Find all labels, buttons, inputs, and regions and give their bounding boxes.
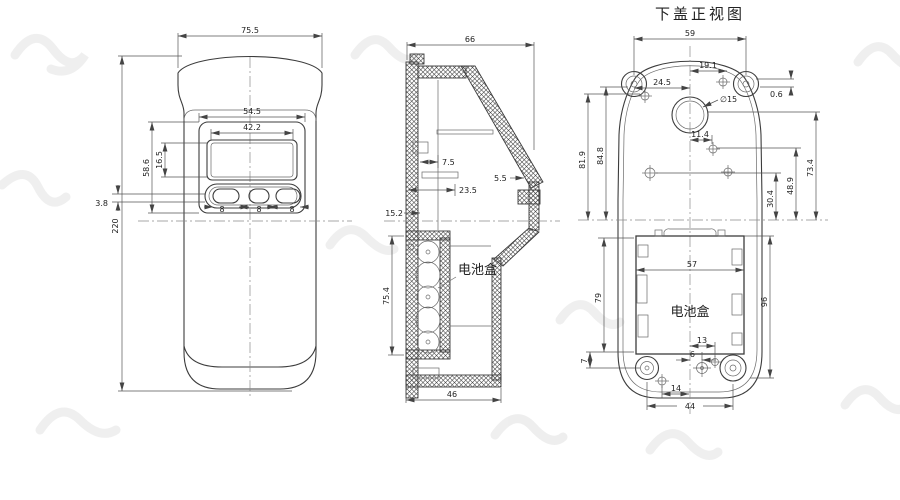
svg-text:75.4: 75.4 bbox=[382, 287, 391, 305]
battery-box-tab-left bbox=[655, 230, 662, 236]
button-1 bbox=[213, 189, 239, 203]
svg-text:23.5: 23.5 bbox=[459, 186, 477, 195]
top-notch bbox=[410, 54, 424, 64]
svg-text:8: 8 bbox=[256, 205, 261, 214]
view-title: 下盖正视图 bbox=[655, 5, 745, 23]
dim-display-width: 42.2 bbox=[211, 123, 293, 140]
dim-bottom-width: 46 bbox=[406, 388, 501, 403]
dim-center-hole: ∅15 bbox=[703, 95, 737, 107]
button-3 bbox=[276, 189, 300, 203]
side-boss bbox=[518, 190, 540, 204]
hole-mid-left bbox=[642, 165, 658, 181]
hole-mid-right bbox=[721, 165, 735, 179]
svg-text:75.5: 75.5 bbox=[241, 26, 259, 35]
right-upper-wall bbox=[529, 182, 539, 230]
lcd-display-inner bbox=[211, 143, 293, 177]
battery-cells bbox=[416, 241, 440, 353]
front-panel bbox=[199, 122, 305, 213]
front-view: 75.5 220 54.5 42.2 58.6 bbox=[95, 26, 352, 398]
svg-text:54.5: 54.5 bbox=[243, 107, 261, 116]
battery-box-label: 电池盒 bbox=[670, 304, 709, 320]
svg-text:48.9: 48.9 bbox=[786, 177, 795, 195]
battery-box-tab-right bbox=[718, 230, 725, 236]
left-wall bbox=[406, 62, 418, 398]
top-wall bbox=[418, 66, 466, 78]
svg-text:7: 7 bbox=[580, 358, 589, 363]
screw-boss-top-right bbox=[734, 72, 759, 97]
svg-text:66: 66 bbox=[465, 35, 475, 44]
dim-hole-offset: 11.4 bbox=[690, 130, 712, 144]
svg-text:220: 220 bbox=[111, 218, 120, 233]
dim-height-489: 48.9 bbox=[717, 148, 801, 220]
back-view: 下盖正视图 bbox=[578, 5, 828, 414]
lcd-display-outer bbox=[207, 140, 297, 180]
svg-text:57: 57 bbox=[687, 260, 697, 269]
svg-text:46: 46 bbox=[447, 390, 457, 399]
dim-hole-pitch-left: 24.5 bbox=[634, 78, 690, 88]
battery-box-label: 电池盒 bbox=[458, 262, 497, 278]
svg-text:58.6: 58.6 bbox=[142, 159, 151, 177]
svg-text:∅15: ∅15 bbox=[720, 95, 737, 104]
dim-box-height-left: 79 bbox=[586, 238, 634, 352]
hole-bottom-small bbox=[709, 356, 721, 368]
svg-text:96: 96 bbox=[760, 297, 769, 307]
svg-text:84.8: 84.8 bbox=[596, 147, 605, 165]
dim-edge-gap: 0.6 bbox=[756, 71, 794, 99]
battery-bottom-cap bbox=[406, 350, 450, 359]
svg-text:0.6: 0.6 bbox=[770, 90, 783, 99]
dim-14: 14 bbox=[662, 384, 689, 398]
dim-height-819: 81.9 bbox=[578, 94, 640, 220]
dim-box-height-right: 96 bbox=[744, 236, 774, 378]
svg-text:81.9: 81.9 bbox=[578, 151, 587, 169]
svg-text:30.4: 30.4 bbox=[766, 190, 775, 208]
dim-6: 6 bbox=[676, 350, 716, 360]
dim-boss: 5.5 bbox=[494, 174, 524, 183]
hole-mid-offset bbox=[706, 142, 720, 156]
svg-text:7.5: 7.5 bbox=[442, 158, 455, 167]
svg-text:59: 59 bbox=[685, 29, 695, 38]
dim-button-offset: 3.8 bbox=[95, 185, 205, 211]
svg-text:8: 8 bbox=[289, 205, 294, 214]
dim-height-734: 73.4 bbox=[708, 112, 820, 220]
svg-text:14: 14 bbox=[671, 384, 681, 393]
svg-text:8: 8 bbox=[219, 205, 224, 214]
svg-text:79: 79 bbox=[594, 293, 603, 303]
inner-shelf bbox=[422, 172, 458, 178]
dim-panel-height: 58.6 bbox=[142, 122, 199, 213]
svg-text:24.5: 24.5 bbox=[653, 78, 671, 87]
svg-text:19.1: 19.1 bbox=[699, 61, 717, 70]
screw-boss-bottom-right bbox=[720, 355, 746, 381]
dim-section-width: 66 bbox=[407, 35, 534, 150]
bottom-wall bbox=[406, 375, 501, 387]
svg-text:16.5: 16.5 bbox=[155, 151, 164, 169]
hole-top-left bbox=[638, 89, 652, 103]
dim-box-width: 57 bbox=[636, 260, 744, 270]
svg-text:3.8: 3.8 bbox=[95, 199, 108, 208]
svg-text:6: 6 bbox=[690, 350, 695, 359]
svg-text:5.5: 5.5 bbox=[494, 174, 507, 183]
inner-rib bbox=[437, 130, 493, 134]
dim-foot: 7 bbox=[580, 352, 640, 368]
svg-text:15.2: 15.2 bbox=[385, 209, 403, 218]
hole-bottom-left bbox=[655, 374, 669, 388]
dim-front-overall-height: 220 bbox=[111, 56, 292, 391]
dim-rib: 7.5 bbox=[420, 155, 455, 168]
engineering-drawing-sheet: 75.5 220 54.5 42.2 58.6 bbox=[0, 0, 900, 500]
dim-button-widths: 8 8 8 bbox=[204, 205, 309, 214]
hole-bottom-center bbox=[693, 359, 711, 377]
button-2 bbox=[249, 189, 269, 203]
dim-panel-width: 54.5 bbox=[199, 107, 305, 122]
svg-text:44: 44 bbox=[685, 402, 695, 411]
upper-diagonal-wall bbox=[461, 66, 543, 188]
drawing-canvas: 75.5 220 54.5 42.2 58.6 bbox=[0, 0, 900, 500]
svg-text:73.4: 73.4 bbox=[806, 159, 815, 177]
hole-top-right bbox=[716, 75, 730, 89]
battery-right-wall bbox=[440, 238, 450, 352]
svg-text:42.2: 42.2 bbox=[243, 123, 261, 132]
svg-text:13: 13 bbox=[697, 336, 707, 345]
section-view: 66 7.5 23.5 15.2 5.5 75.4 bbox=[382, 35, 560, 403]
svg-text:11.4: 11.4 bbox=[691, 130, 709, 139]
